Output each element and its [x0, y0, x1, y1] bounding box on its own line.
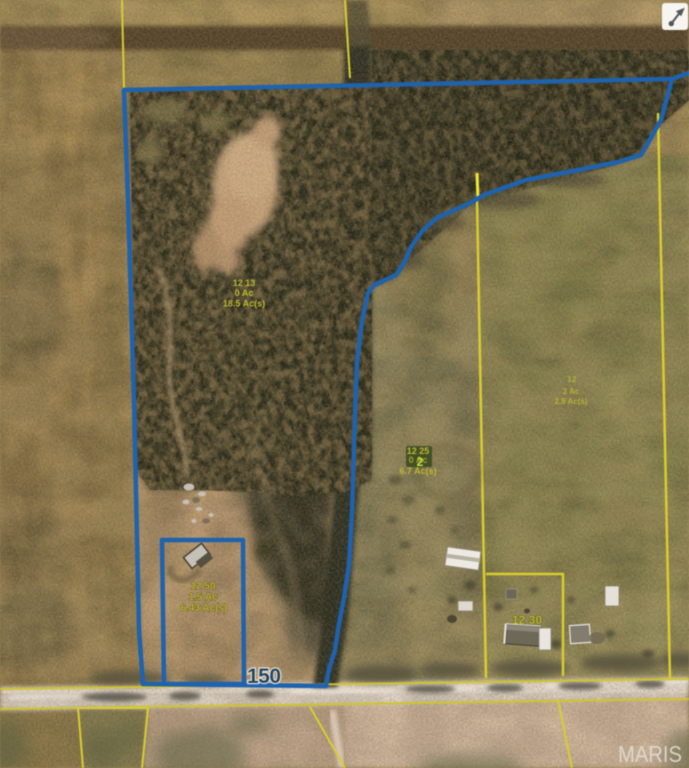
svg-text:18.5 Ac(s): 18.5 Ac(s) — [223, 299, 265, 309]
svg-text:0 Ac: 0 Ac — [235, 288, 254, 298]
svg-text:6.7 Ac(s): 6.7 Ac(s) — [399, 466, 436, 476]
svg-text:2 Ac: 2 Ac — [563, 387, 580, 396]
svg-text:2.9 Ac(s): 2.9 Ac(s) — [554, 397, 587, 406]
svg-text:1.5 Ac: 1.5 Ac — [188, 592, 218, 603]
svg-text:12 50: 12 50 — [190, 581, 215, 592]
svg-text:12: 12 — [568, 375, 577, 384]
svg-text:12 13: 12 13 — [233, 278, 256, 288]
svg-text:6.43 Ac(s): 6.43 Ac(s) — [181, 603, 228, 614]
svg-text:MARIS: MARIS — [618, 741, 682, 767]
svg-text:150: 150 — [247, 665, 281, 688]
